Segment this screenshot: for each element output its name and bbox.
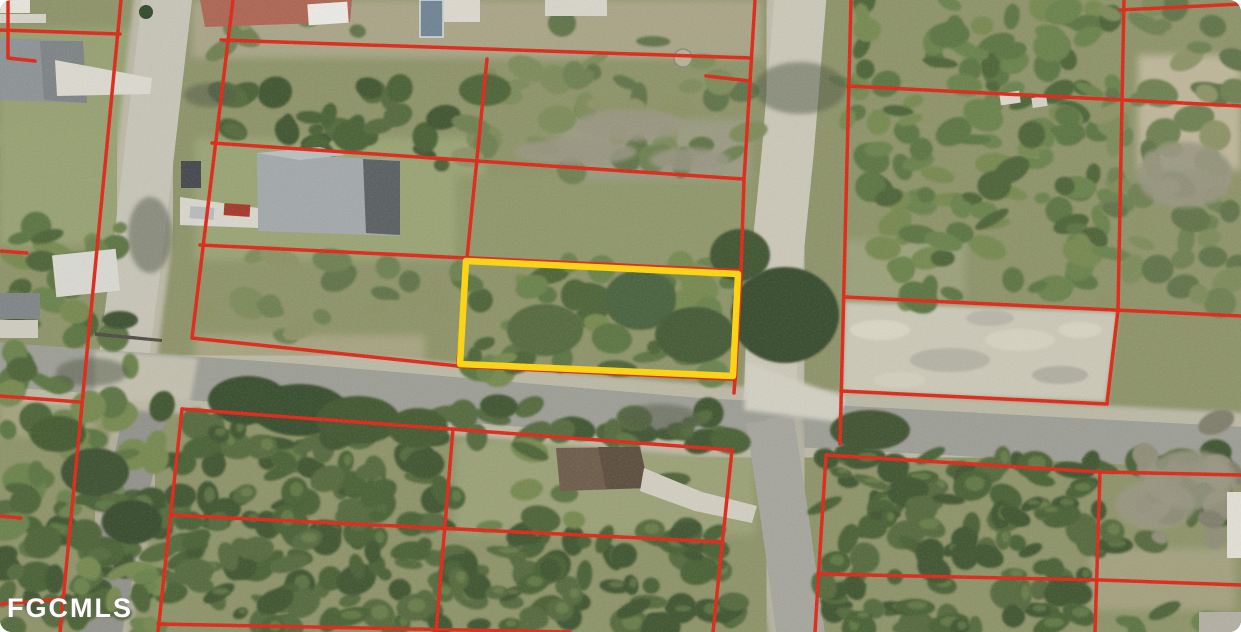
aerial-listing-photo: FGCMLS xyxy=(0,0,1241,632)
photo-grain-overlay xyxy=(0,0,1241,632)
mls-watermark: FGCMLS xyxy=(7,593,133,624)
aerial-map-canvas xyxy=(0,0,1241,632)
